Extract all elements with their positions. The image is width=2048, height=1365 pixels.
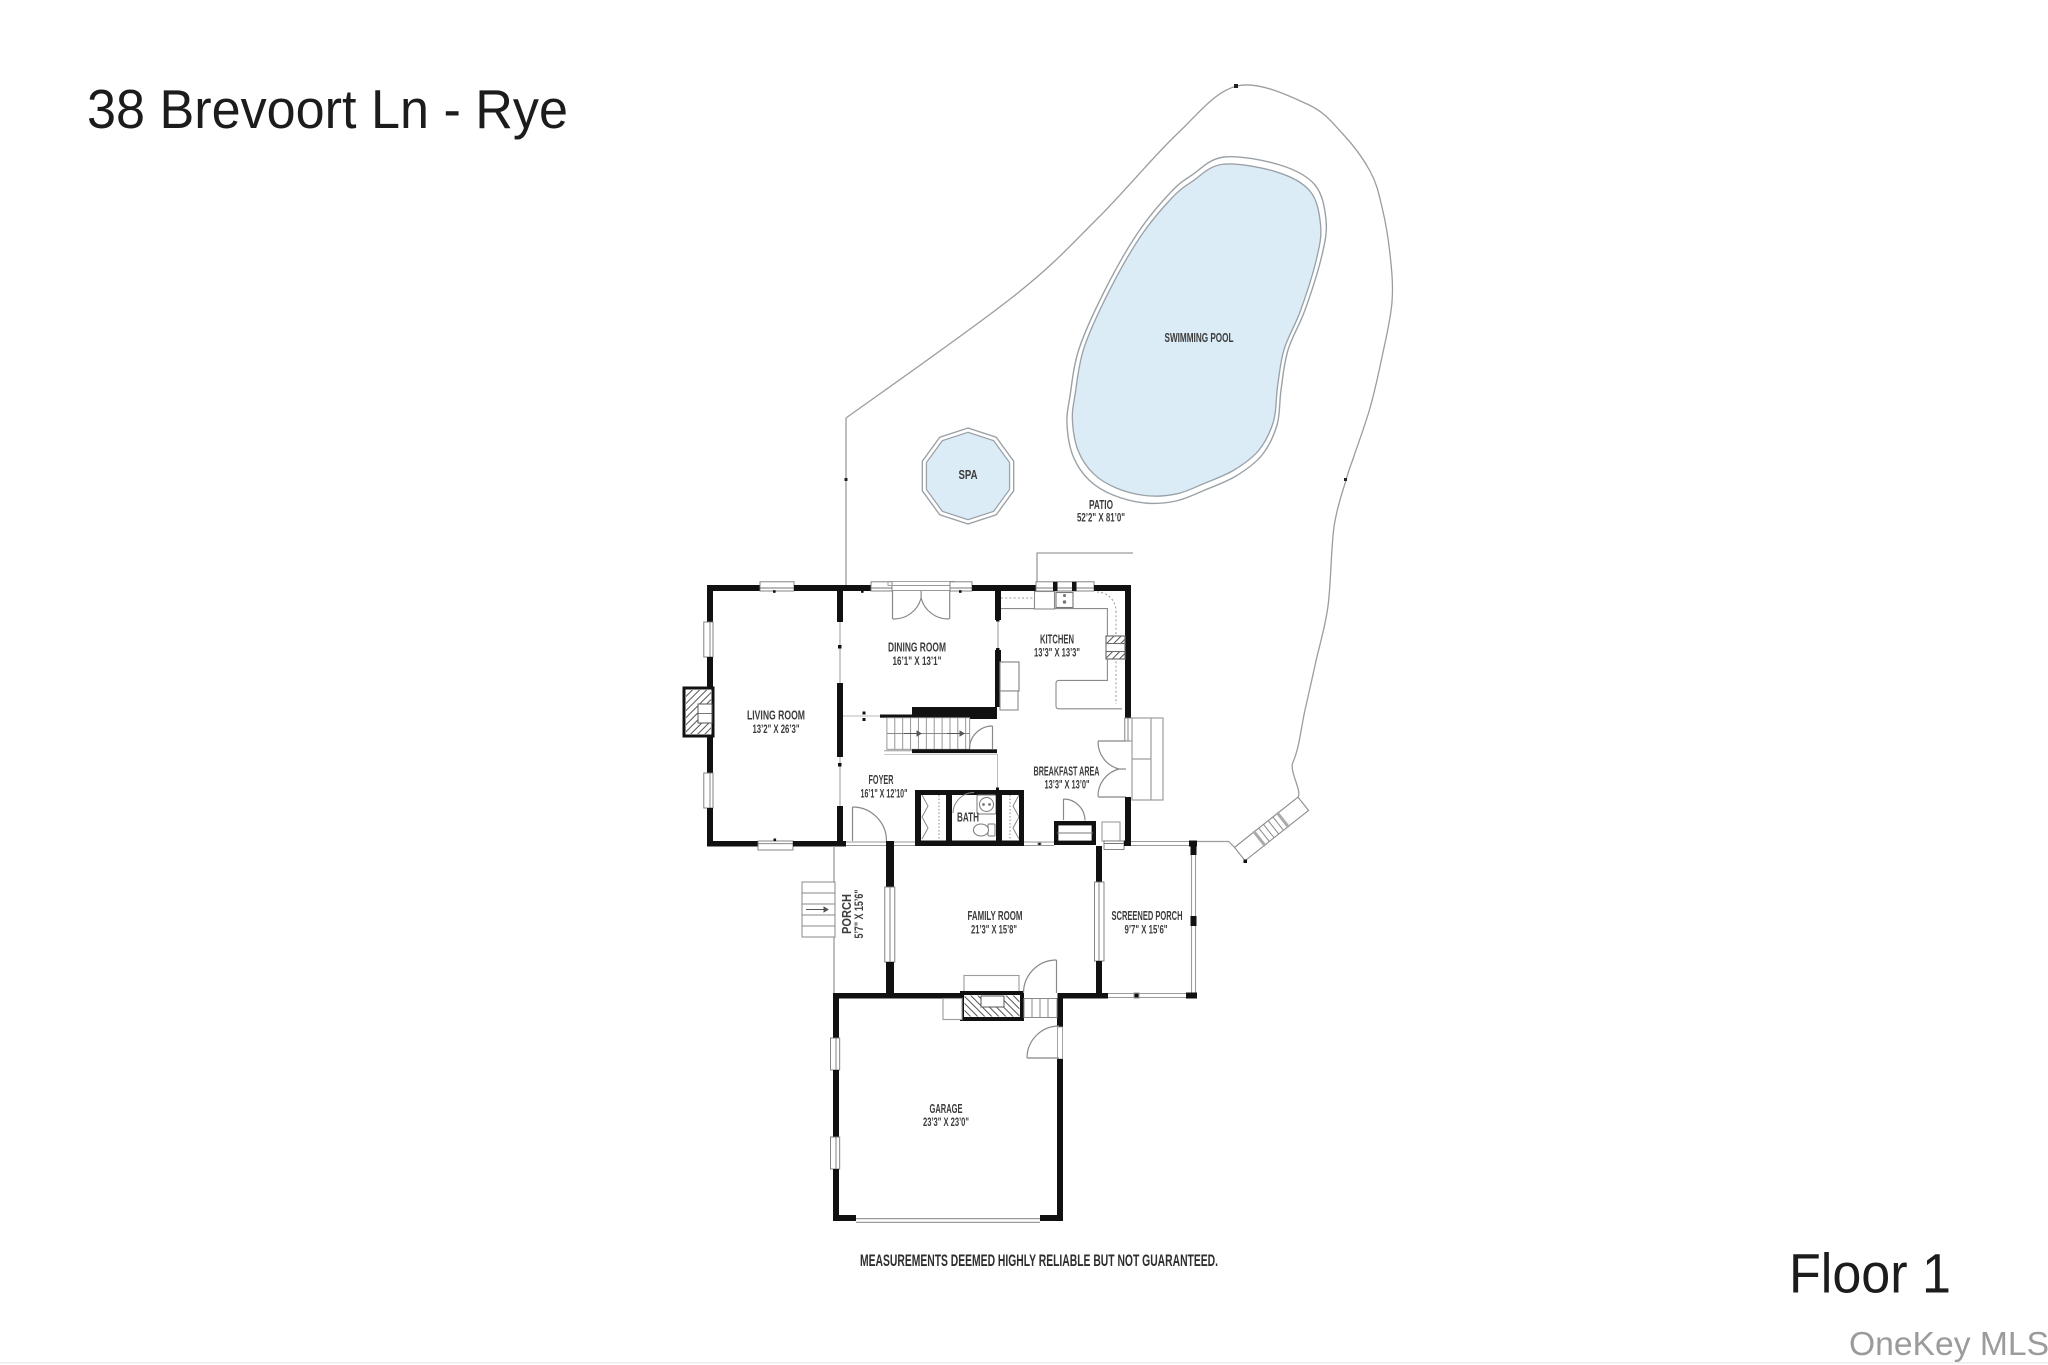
svg-text:52’2" X 81’0": 52’2" X 81’0" (1077, 511, 1125, 525)
svg-text:LIVING ROOM: LIVING ROOM (747, 709, 805, 723)
svg-text:Floor 1: Floor 1 (1789, 1242, 1951, 1305)
svg-text:BATH: BATH (957, 811, 979, 825)
svg-text:FOYER: FOYER (869, 773, 894, 787)
svg-text:5’7" X 15’6": 5’7" X 15’6" (852, 890, 866, 939)
svg-text:MEASUREMENTS DEEMED HIGHLY REL: MEASUREMENTS DEEMED HIGHLY RELIABLE BUT … (860, 1252, 1218, 1270)
svg-text:23’3" X 23’0": 23’3" X 23’0" (923, 1115, 969, 1129)
svg-text:38 Brevoort Ln - Rye: 38 Brevoort Ln - Rye (87, 78, 568, 140)
svg-text:SPA: SPA (959, 468, 978, 482)
svg-text:16’1" X 13’1": 16’1" X 13’1" (893, 654, 942, 668)
svg-text:13’3" X 13’0": 13’3" X 13’0" (1045, 778, 1090, 792)
svg-text:KITCHEN: KITCHEN (1040, 633, 1074, 647)
svg-text:FAMILY ROOM: FAMILY ROOM (968, 909, 1023, 923)
svg-text:13’3" X 13’3": 13’3" X 13’3" (1034, 646, 1080, 660)
svg-text:SWIMMING POOL: SWIMMING POOL (1165, 331, 1234, 345)
svg-text:21’3" X 15’8": 21’3" X 15’8" (971, 923, 1017, 937)
svg-text:OneKey MLS: OneKey MLS (1849, 1325, 2048, 1362)
svg-text:SCREENED PORCH: SCREENED PORCH (1112, 909, 1183, 923)
svg-text:GARAGE: GARAGE (930, 1102, 963, 1116)
svg-text:9’7" X 15’6": 9’7" X 15’6" (1125, 923, 1168, 937)
svg-text:16’1" X 12’10": 16’1" X 12’10" (861, 787, 908, 801)
svg-text:DINING ROOM: DINING ROOM (888, 641, 946, 655)
svg-text:13’2" X 26’3": 13’2" X 26’3" (753, 722, 800, 736)
svg-text:BREAKFAST AREA: BREAKFAST AREA (1034, 765, 1100, 779)
